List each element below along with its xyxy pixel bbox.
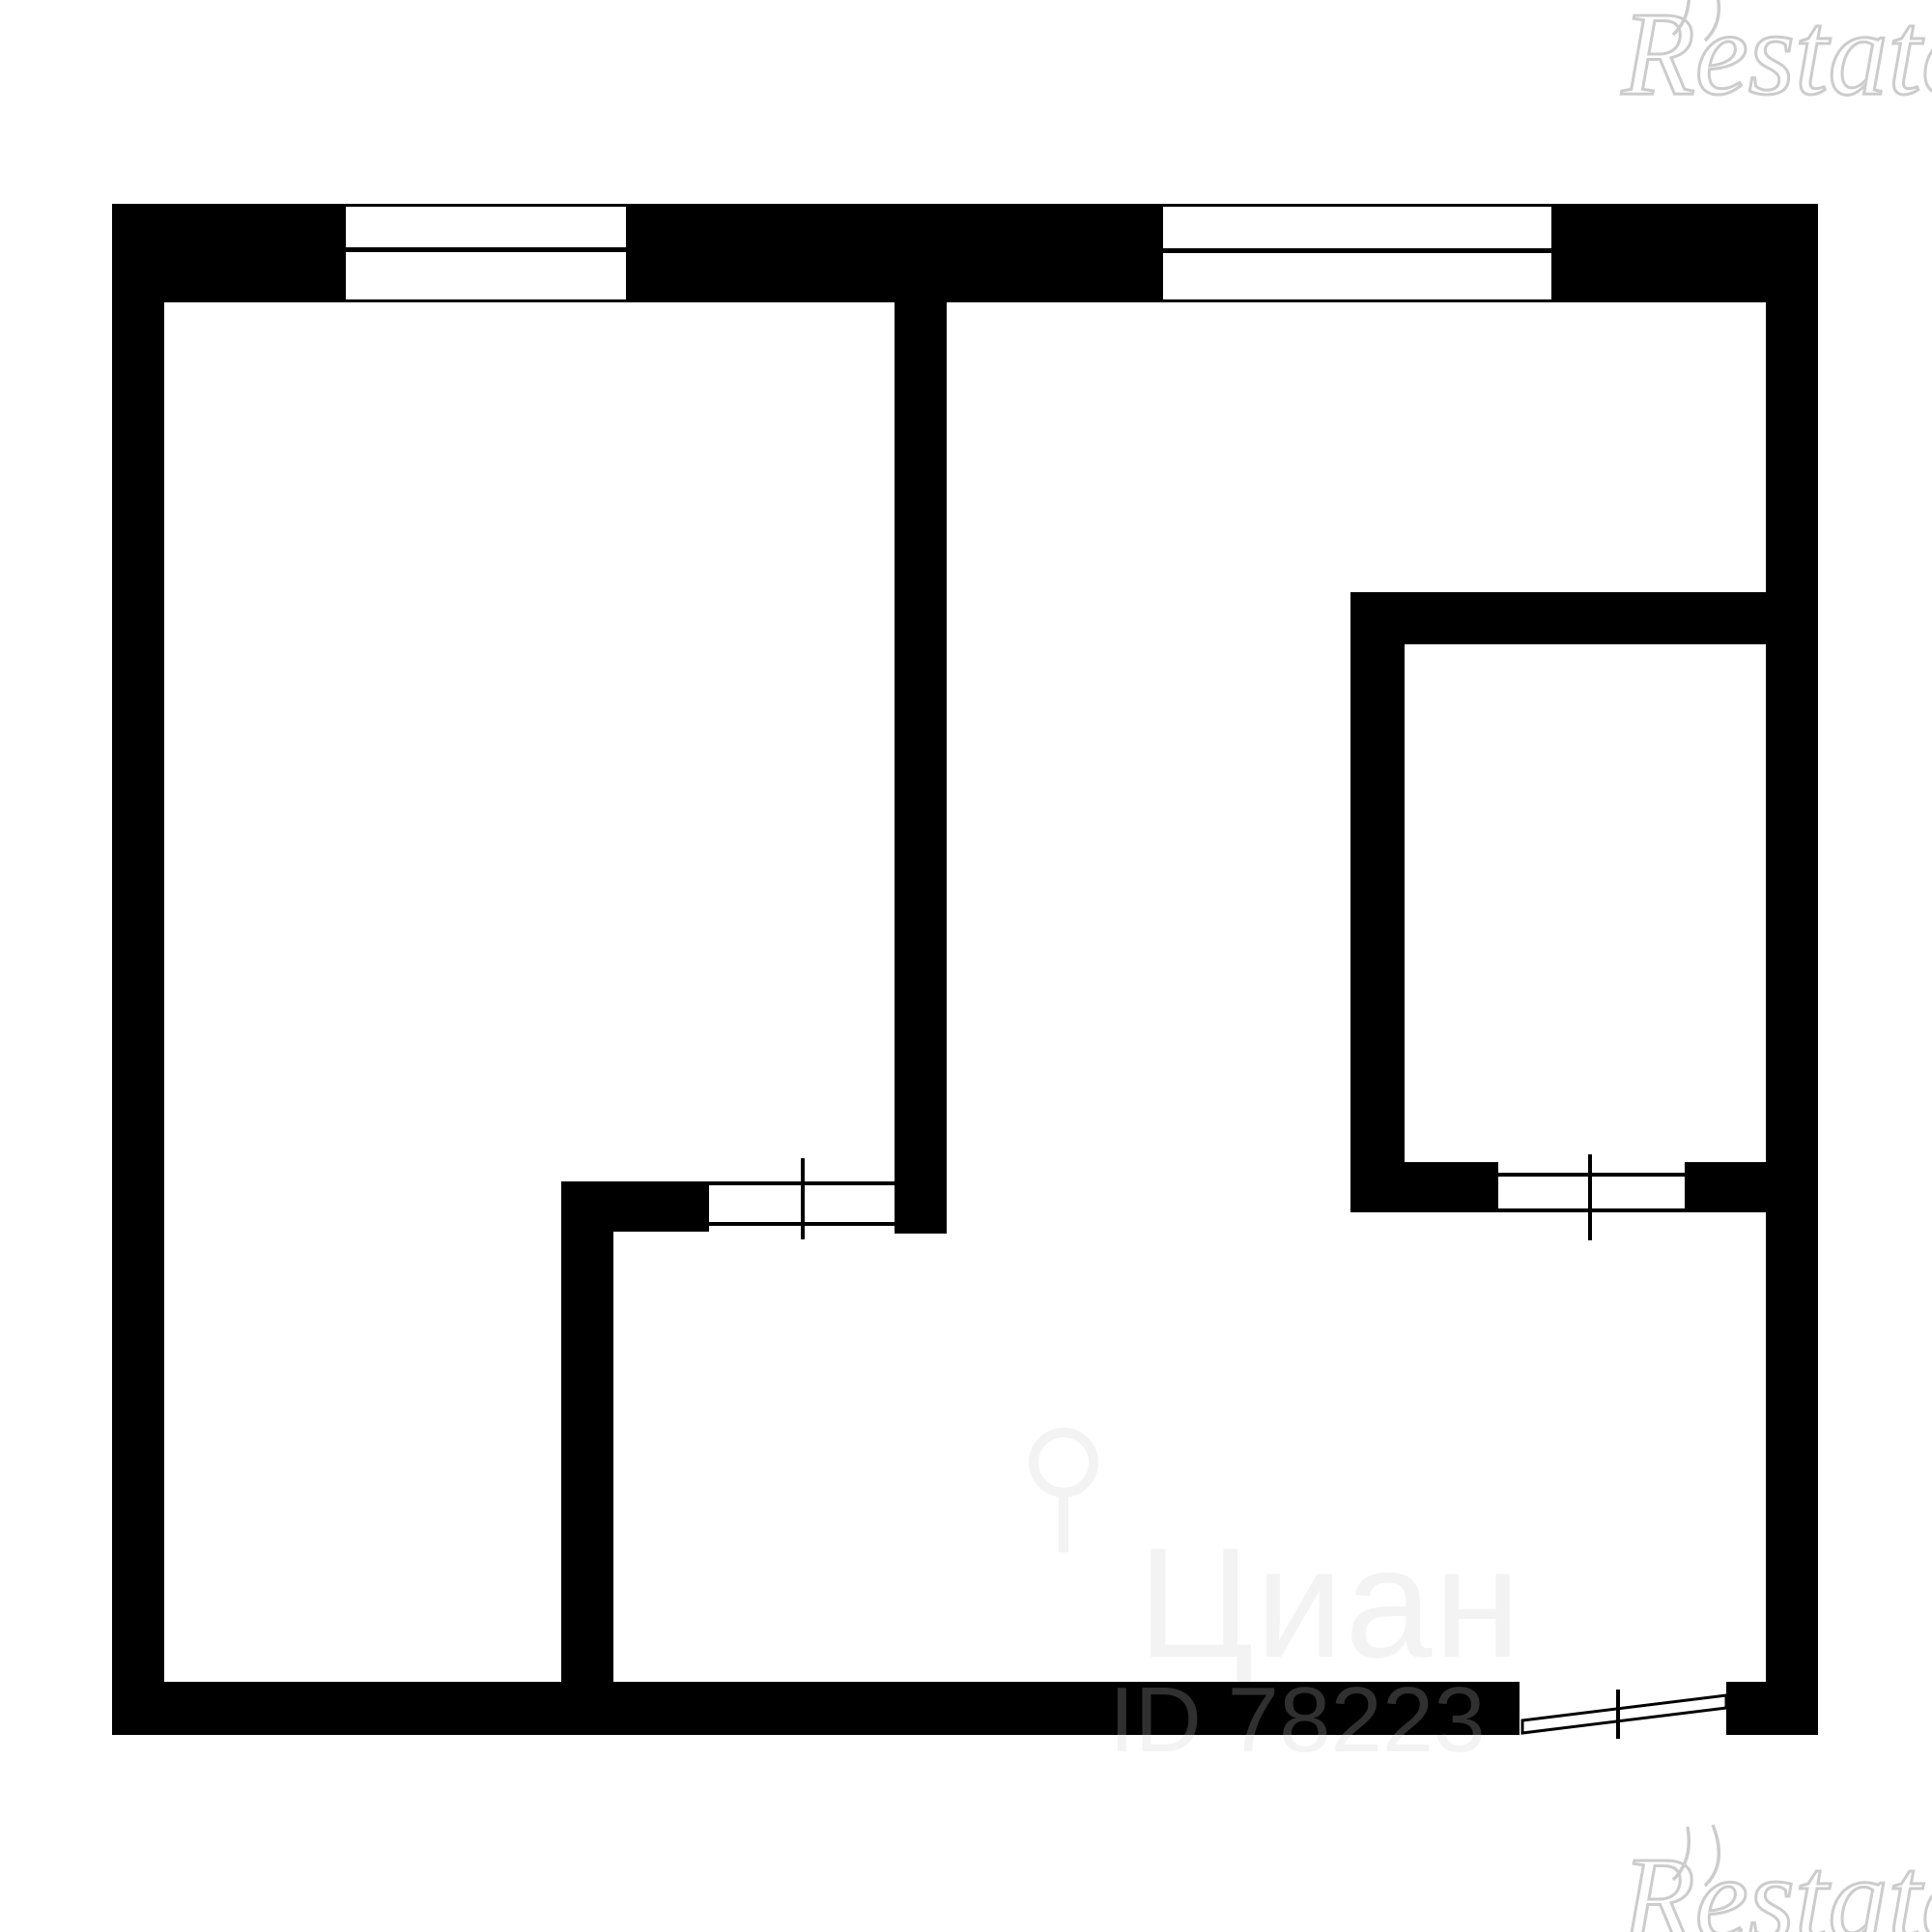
svg-text:Циан: Циан [1138, 1516, 1522, 1690]
svg-text:Restate: Restate [1621, 0, 1932, 120]
svg-text:Restate: Restate [1621, 1833, 1932, 1932]
